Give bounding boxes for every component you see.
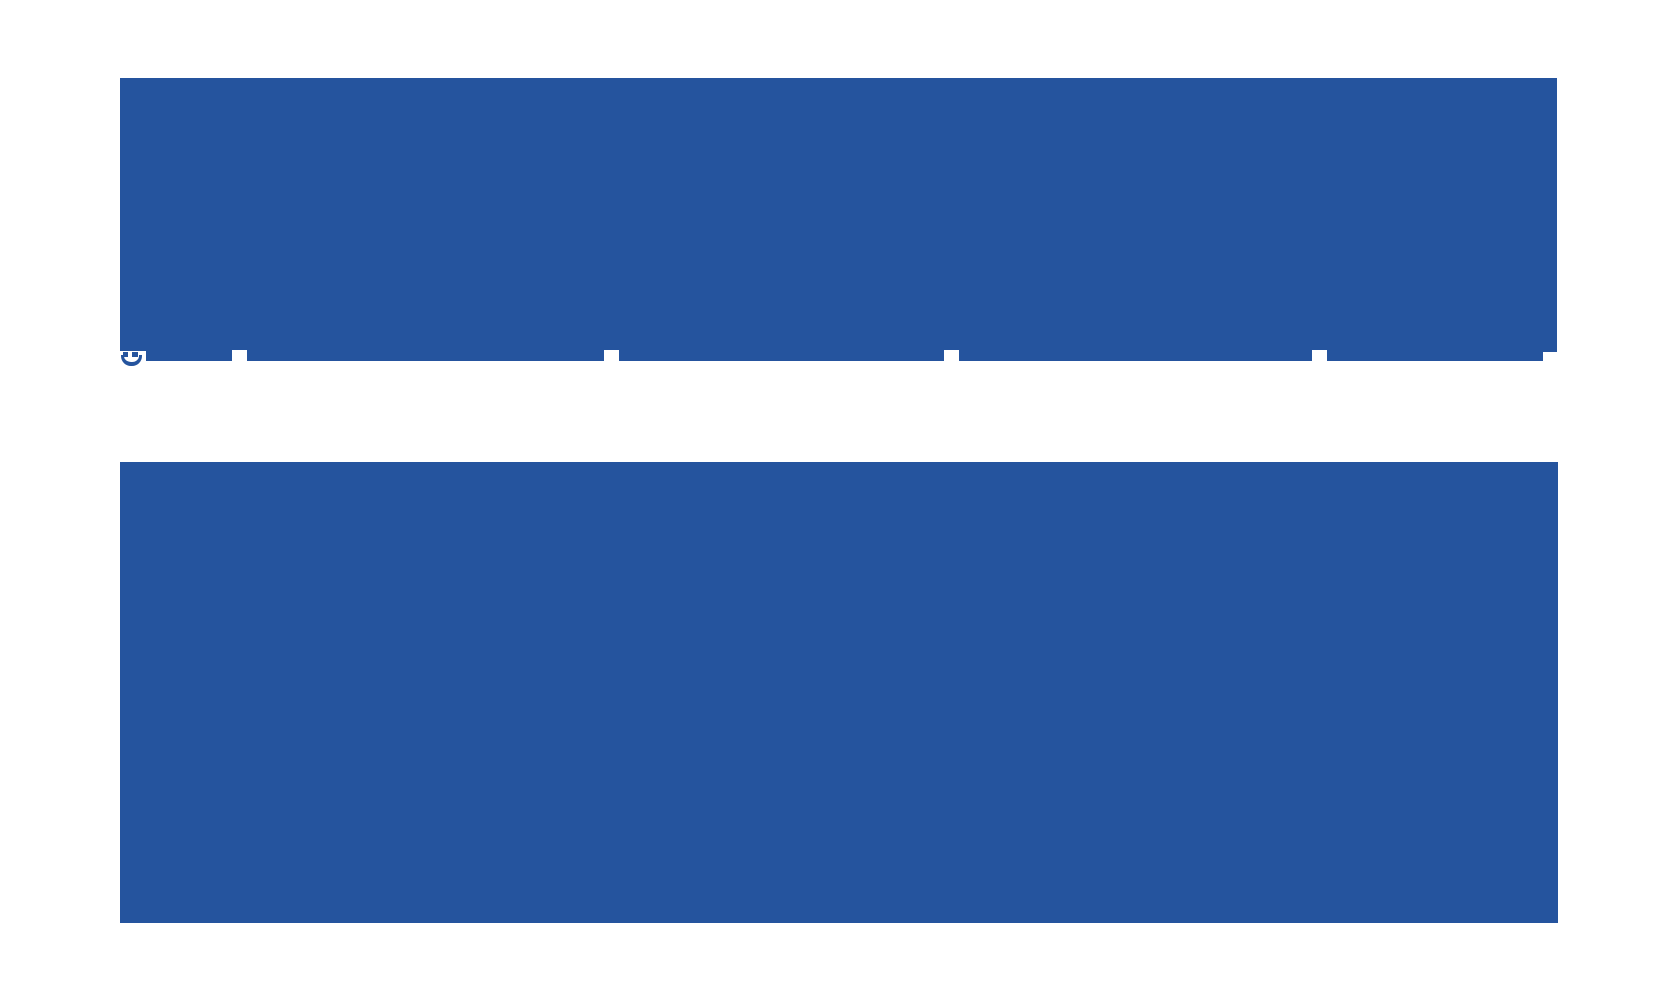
bottom-strip-gap bbox=[944, 350, 959, 361]
glyph-arc-icon bbox=[121, 355, 142, 366]
bottom-strip-corner-cut bbox=[1543, 352, 1557, 361]
bottom-strip-gap bbox=[232, 350, 247, 361]
bottom-strip-gap bbox=[604, 350, 619, 361]
page-background bbox=[0, 0, 1680, 1000]
bottom-redacted-block bbox=[120, 462, 1558, 923]
bottom-strip-gap bbox=[1312, 350, 1327, 361]
smile-glyph-icon bbox=[119, 350, 146, 368]
top-redacted-block bbox=[120, 78, 1557, 361]
